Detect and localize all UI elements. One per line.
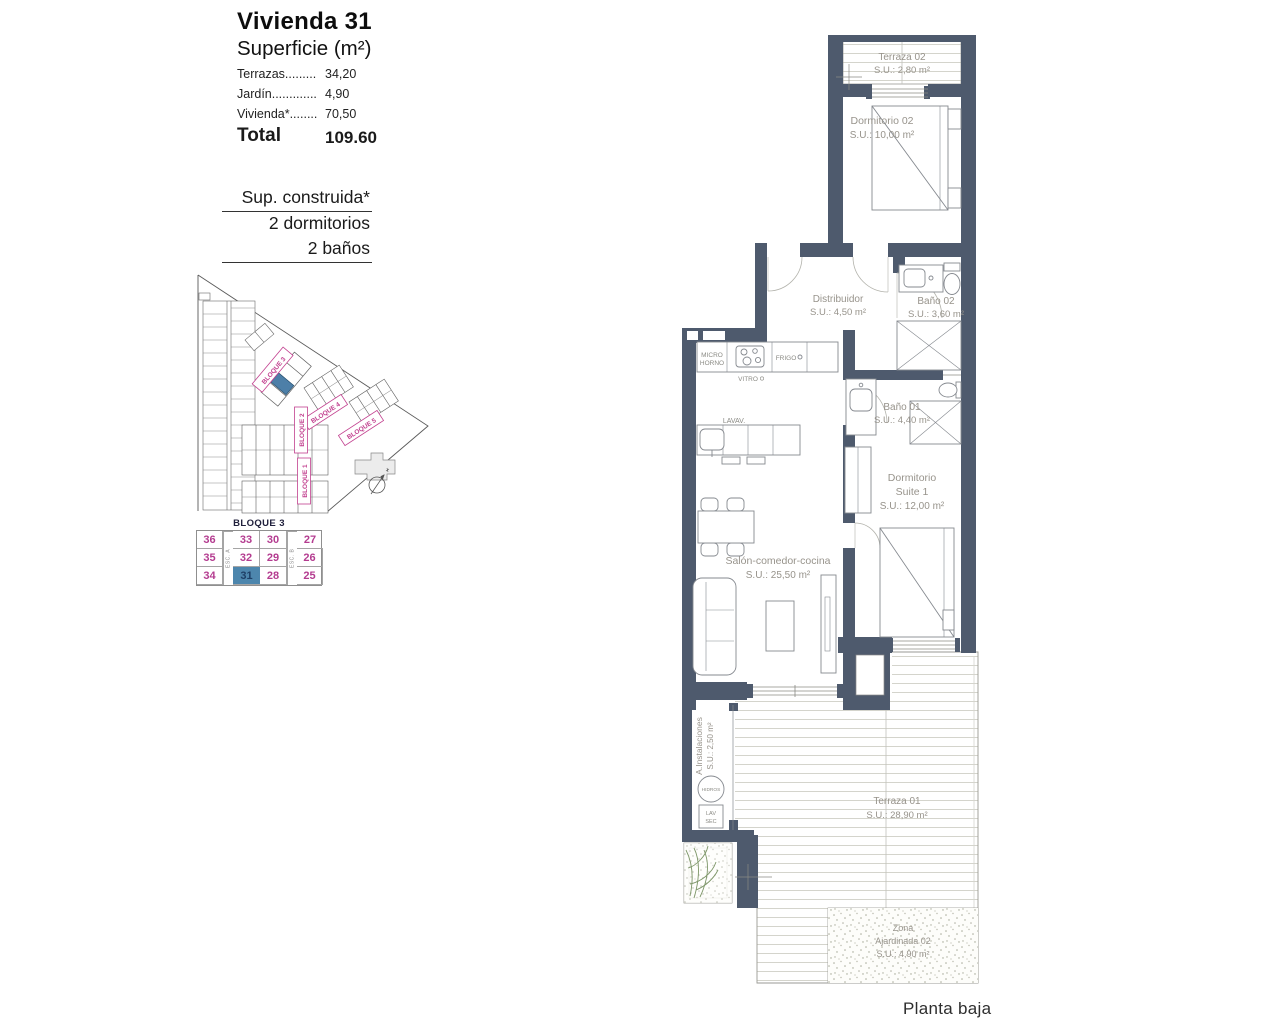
built-surface-title: Sup. construida*	[222, 186, 372, 212]
stair-b-label: ESC. B	[287, 531, 297, 585]
room-label-suite: Dormitorio	[888, 472, 937, 484]
area-label: Jardín.............	[237, 87, 317, 101]
dining-set	[698, 498, 754, 556]
label-micro: MICRO	[701, 352, 723, 359]
page-title: Vivienda 31	[237, 8, 372, 36]
unit-cell-27: 27	[297, 531, 323, 549]
area-row-vivienda: Vivienda*........ 70,50	[237, 107, 407, 127]
room-area-suite: S.U.: 12,00 m²	[880, 501, 945, 512]
coffee-table	[766, 601, 794, 651]
sink-icon	[700, 429, 724, 450]
area-value: 4,90	[325, 87, 349, 101]
bed-suite	[880, 528, 954, 637]
room-area-dormitorio-02: S.U.: 10,00 m²	[850, 130, 915, 141]
label-lav: LAV	[706, 811, 716, 817]
bedrooms-count: 2 dormitorios	[222, 212, 372, 237]
area-value: 34,20	[325, 67, 356, 81]
room-area-instalaciones: S.U.: 2,50 m²	[706, 722, 715, 769]
community-building	[355, 453, 395, 480]
bloque-2-label: BLOQUE 2	[299, 413, 306, 447]
room-label-dormitorio-02: Dormitorio 02	[850, 115, 913, 127]
unit-cell-25: 25	[297, 567, 323, 585]
bloque-1-tag: BLOQUE 1	[298, 458, 311, 504]
area-value: 70,50	[325, 107, 356, 121]
stair-a-label: ESC. A	[223, 531, 233, 585]
built-surface-block: Sup. construida* 2 dormitorios 2 baños	[222, 186, 372, 263]
unit-cell-29: 29	[260, 549, 287, 567]
label-horno: HORNO	[700, 360, 724, 367]
plan-caption: Planta baja	[903, 999, 991, 1019]
room-label-salon: Salón-comedor-cocina	[725, 555, 830, 567]
room-area-bano-02: S.U.: 3,60 m²	[908, 309, 964, 320]
room-label-suite-2: Suite 1	[896, 486, 929, 498]
room-label-zona-2: Ajardinada 02	[875, 936, 931, 946]
total-row: Total 109.60	[237, 125, 417, 147]
unit-cell-36: 36	[197, 531, 223, 549]
unit-cell-32: 32	[233, 549, 260, 567]
room-label-bano-02: Baño 02	[917, 296, 955, 307]
unit-cell-33: 33	[233, 531, 260, 549]
room-label-bano-01: Baño 01	[883, 402, 921, 413]
room-area-zona: S.U.: 4,90 m²	[876, 949, 929, 959]
label-water-tank: HIDROS	[702, 787, 721, 793]
unit-cell-30: 30	[260, 531, 287, 549]
unit-cell-35: 35	[197, 549, 223, 567]
label-sec: SEC	[705, 819, 716, 825]
room-area-distribuidor: S.U.: 4,50 m²	[810, 307, 866, 318]
area-label: Terrazas.........	[237, 67, 316, 81]
unit-table-grid: 36 ESC. A 33 30 ESC. B 27 35 32 29 26 34…	[196, 530, 322, 586]
wardrobe-suite	[845, 447, 871, 513]
room-area-bano-01: S.U.: 4,40 m²	[874, 415, 930, 426]
total-label: Total	[237, 125, 281, 146]
room-label-terraza-02: Terraza 02	[878, 52, 926, 63]
room-area-salon: S.U.: 25,50 m²	[746, 570, 811, 581]
room-label-zona-1: Zona	[893, 923, 914, 933]
bloque-1-building	[242, 481, 328, 513]
bloque-1-label: BLOQUE 1	[302, 464, 309, 498]
area-label: Vivienda*........	[237, 107, 317, 121]
unit-cell-34: 34	[197, 567, 223, 585]
bloque-2-building	[242, 425, 328, 475]
sofa-icon	[693, 578, 736, 675]
planter-bed	[684, 843, 732, 903]
room-label-terraza-01: Terraza 01	[873, 796, 921, 807]
floor-plan: Terraza 02 S.U.: 2,80 m² Dormitorio 02 S…	[675, 25, 995, 1000]
room-area-terraza-01: S.U.: 28,90 m²	[866, 810, 927, 821]
label-vitro: VITRO	[738, 376, 758, 383]
unit-table: BLOQUE 3 36 ESC. A 33 30 ESC. B 27 35 32…	[196, 518, 322, 586]
bathrooms-count: 2 baños	[222, 237, 372, 263]
site-plan: BLOQUE 3 BLOQUE 4 BLOQUE 5 BLOQUE 2 BLOQ…	[185, 268, 435, 516]
area-row-jardin: Jardín............. 4,90	[237, 87, 407, 107]
unit-cell-31-highlighted: 31	[233, 567, 260, 585]
surface-subtitle: Superficie (m²)	[237, 37, 371, 61]
bloque-2-tag: BLOQUE 2	[295, 407, 308, 453]
area-row-terrazas: Terrazas......... 34,20	[237, 67, 407, 87]
unit-cell-26: 26	[297, 549, 323, 567]
unit-table-title: BLOQUE 3	[196, 518, 322, 529]
room-label-distribuidor: Distribuidor	[813, 294, 864, 305]
unit-cell-28: 28	[260, 567, 287, 585]
room-label-instalaciones: A.Instalaciones	[694, 717, 704, 775]
label-lavav: LAVAV.	[723, 418, 745, 425]
room-area-terraza-02: S.U.: 2,80 m²	[874, 65, 930, 76]
row-houses-strip	[199, 293, 255, 510]
dishwasher-counter	[697, 425, 800, 464]
tv-unit	[821, 575, 836, 673]
label-frigo: FRIGO	[776, 355, 797, 362]
total-value: 109.60	[325, 128, 377, 148]
